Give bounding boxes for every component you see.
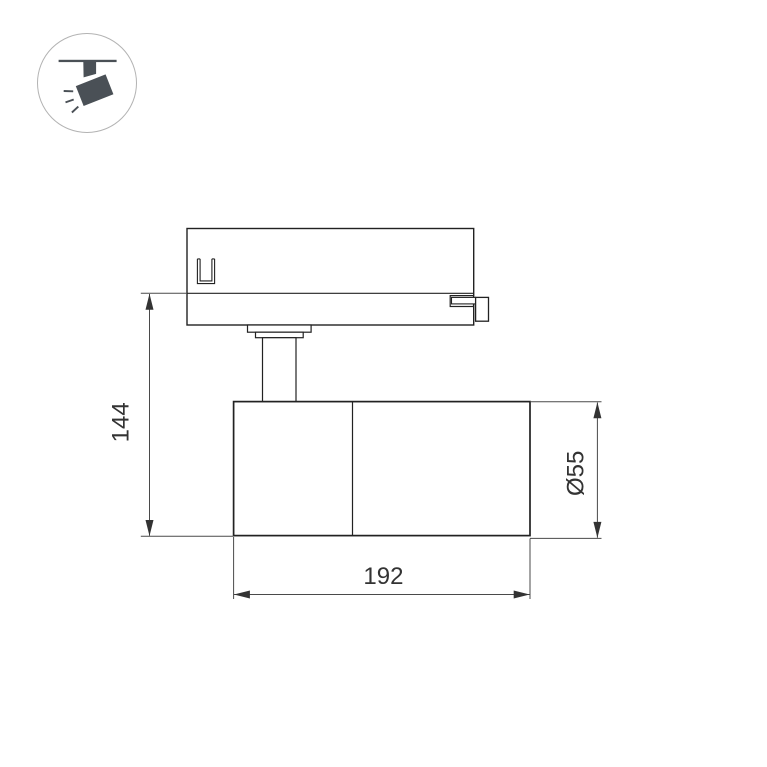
svg-text:Ø55: Ø55 [563,451,590,496]
svg-text:192: 192 [363,563,403,590]
svg-text:144: 144 [108,402,135,442]
